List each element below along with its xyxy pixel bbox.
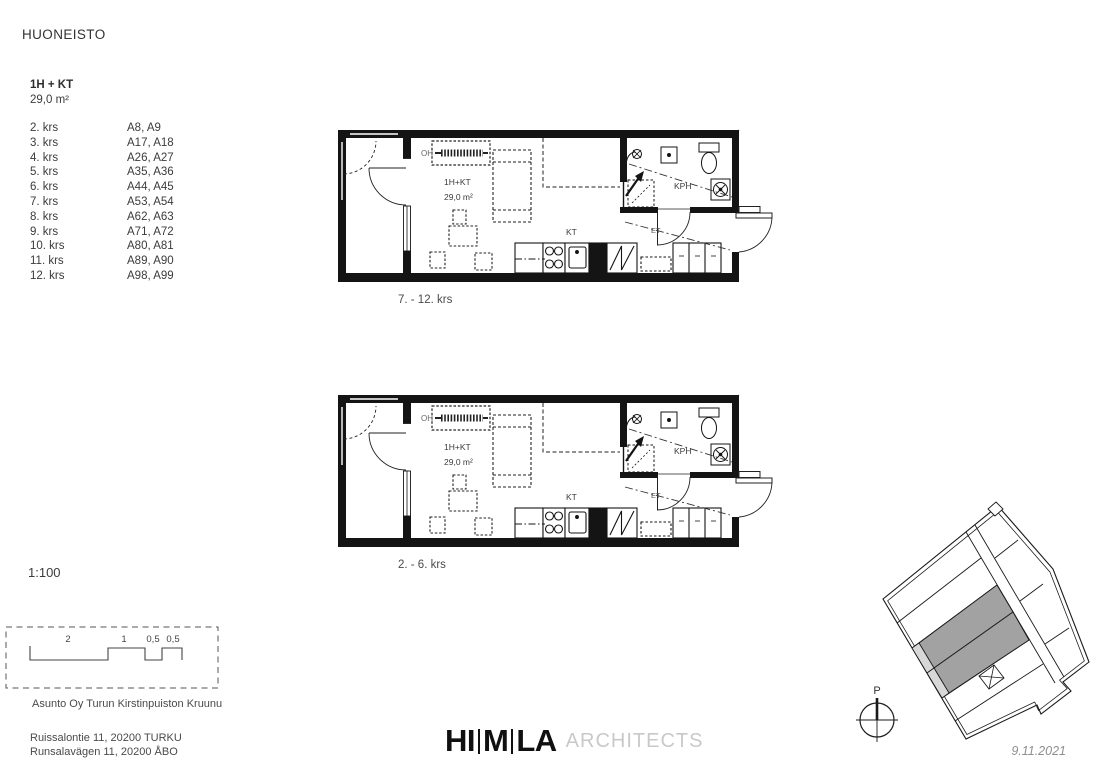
- project-name: Asunto Oy Turun Kirstinpuiston Kruunu: [32, 698, 222, 710]
- scale-bar-label-05b: 0,5: [166, 634, 179, 645]
- logo-part-m: M: [483, 723, 508, 759]
- floor-row: 8. krsA62, A63: [30, 210, 174, 225]
- room-label-living: OH: [421, 149, 433, 158]
- floor-apartments: A62, A63: [127, 210, 174, 225]
- floor-row: 11. krsA89, A90: [30, 254, 174, 269]
- exterior-wall-stub: [739, 472, 760, 478]
- drawing-sheet: HUONEISTO 1H + KT 29,0 m² 2. krsA8, A93.…: [0, 0, 1099, 779]
- room-label-living: OH: [421, 414, 433, 423]
- logo-divider-icon: [511, 729, 513, 754]
- project-address: Ruissalontie 11, 20200 TURKU Runsalaväge…: [30, 731, 182, 759]
- scale-bar-label-2: 2: [65, 634, 70, 645]
- toilet: [699, 143, 719, 174]
- floor-drain-arrow: [626, 171, 644, 196]
- dining-table: [430, 475, 492, 535]
- oh-cabinet: [432, 406, 490, 430]
- logo-divider-icon: [478, 729, 480, 754]
- balcony-glazing: [342, 134, 398, 200]
- floor-apartments: A89, A90: [127, 254, 174, 269]
- floor-apartments: A17, A18: [127, 136, 174, 151]
- bathroom-door: [657, 474, 690, 510]
- shower-head-icon: [626, 150, 642, 166]
- plan-caption: 2. - 6. krs: [398, 559, 446, 571]
- kitchen-counter: [515, 508, 637, 538]
- floor-row: 6. krsA44, A45: [30, 180, 174, 195]
- page-title: HUONEISTO: [22, 27, 106, 42]
- floor-number: 4. krs: [30, 151, 127, 166]
- floor-plan-drawing: OH 1H+KT 29,0 m² KT KPH ET: [338, 393, 778, 585]
- site-key-plan: P: [855, 498, 1099, 766]
- balcony-door: [344, 141, 406, 205]
- floor-apartments: A44, A45: [127, 180, 174, 195]
- floor-number: 5. krs: [30, 165, 127, 180]
- kitchen-counter: [515, 243, 637, 273]
- bathroom-door: [657, 209, 690, 245]
- washing-machine: [711, 179, 730, 200]
- room-label-bathroom: KPH: [674, 181, 691, 191]
- floor-number: 11. krs: [30, 254, 127, 269]
- washing-machine: [711, 444, 730, 465]
- logo-suffix: ARCHITECTS: [566, 730, 704, 753]
- apartment-type: 1H + KT: [30, 79, 73, 91]
- floor-apartments: A98, A99: [127, 269, 174, 284]
- bed: [493, 150, 531, 222]
- stove: [543, 508, 565, 538]
- apartment-area: 29,0 m²: [30, 94, 69, 106]
- site-building: [883, 502, 1089, 739]
- floor-apartments: A8, A9: [127, 121, 161, 136]
- floor-apartments: A53, A54: [127, 195, 174, 210]
- logo-part-hi: HI: [445, 723, 475, 759]
- room-label-bathroom: KPH: [674, 446, 691, 456]
- himla-logo: HI M LA ARCHITECTS: [445, 724, 703, 758]
- floor-row: 9. krsA71, A72: [30, 225, 174, 240]
- floor-row: 7. krsA53, A54: [30, 195, 174, 210]
- front-door: [736, 207, 772, 253]
- room-label-area: 29,0 m²: [444, 192, 473, 202]
- drawing-date: 9.11.2021: [1000, 744, 1066, 758]
- balcony-door: [344, 406, 406, 470]
- kitchen-zone-line: [543, 403, 620, 452]
- dining-table: [430, 210, 492, 270]
- north-compass: P: [856, 685, 898, 742]
- floor-plan-lower: OH 1H+KT 29,0 m² KT KPH ET 2. - 6. krs: [338, 393, 778, 585]
- floor-number: 8. krs: [30, 210, 127, 225]
- bed: [493, 415, 531, 487]
- floor-number: 12. krs: [30, 269, 127, 284]
- bathroom-fixtures: [624, 408, 731, 472]
- scale-bar: 2 1 0,5 0,5: [5, 622, 220, 690]
- toilet: [699, 408, 719, 439]
- floor-row: 3. krsA17, A18: [30, 136, 174, 151]
- floor-row: 2. krsA8, A9: [30, 121, 174, 136]
- floor-number: 10. krs: [30, 239, 127, 254]
- floor-number: 7. krs: [30, 195, 127, 210]
- balcony-glazing: [342, 399, 398, 465]
- floor-apartments: A35, A36: [127, 165, 174, 180]
- shower-head-icon: [626, 415, 642, 431]
- scale-ratio: 1:100: [28, 565, 61, 580]
- floor-plan-upper: OH 1H+KT 29,0 m² KT KPH ET 7. - 12. krs: [338, 128, 778, 320]
- floor-apartments: A71, A72: [127, 225, 174, 240]
- entry-wardrobe: [641, 508, 721, 538]
- floor-plan-drawing: OH 1H+KT 29,0 m² KT KPH ET: [338, 128, 778, 320]
- logo-wordmark: HI M LA: [445, 723, 557, 759]
- oven: [589, 243, 607, 273]
- floor-number: 3. krs: [30, 136, 127, 151]
- floor-row: 10. krsA80, A81: [30, 239, 174, 254]
- entry-wardrobe: [641, 243, 721, 273]
- scale-bar-label-1: 1: [121, 634, 126, 645]
- north-label: P: [873, 685, 880, 697]
- floor-row: 4. krsA26, A27: [30, 151, 174, 166]
- floor-drain-arrow: [626, 436, 644, 461]
- front-door: [736, 472, 772, 518]
- oh-cabinet: [432, 141, 490, 165]
- room-label-kitchen: KT: [566, 227, 577, 237]
- scale-bar-label-05a: 0,5: [146, 634, 159, 645]
- room-label-type: 1H+KT: [444, 177, 471, 187]
- floor-apartments: A26, A27: [127, 151, 174, 166]
- floor-number: 9. krs: [30, 225, 127, 240]
- exterior-wall-stub: [739, 207, 760, 213]
- room-label-area: 29,0 m²: [444, 457, 473, 467]
- kitchen-zone-line: [543, 138, 620, 187]
- bathroom-fixtures: [624, 143, 731, 207]
- room-label-type: 1H+KT: [444, 442, 471, 452]
- washbasin: [661, 147, 677, 163]
- room-label-kitchen: KT: [566, 492, 577, 502]
- oven: [589, 508, 607, 538]
- floor-number: 6. krs: [30, 180, 127, 195]
- floor-apartments: A80, A81: [127, 239, 174, 254]
- plan-caption: 7. - 12. krs: [398, 294, 452, 306]
- address-sv: Runsalavägen 11, 20200 ÅBO: [30, 745, 182, 759]
- floor-number: 2. krs: [30, 121, 127, 136]
- logo-part-la: LA: [516, 723, 556, 759]
- washbasin: [661, 412, 677, 428]
- room-label-entry: ET: [651, 226, 661, 235]
- floor-row: 12. krsA98, A99: [30, 269, 174, 284]
- room-label-entry: ET: [651, 491, 661, 500]
- floor-row: 5. krsA35, A36: [30, 165, 174, 180]
- stove: [543, 243, 565, 273]
- floor-list: 2. krsA8, A93. krsA17, A184. krsA26, A27…: [30, 121, 174, 284]
- address-fi: Ruissalontie 11, 20200 TURKU: [30, 731, 182, 745]
